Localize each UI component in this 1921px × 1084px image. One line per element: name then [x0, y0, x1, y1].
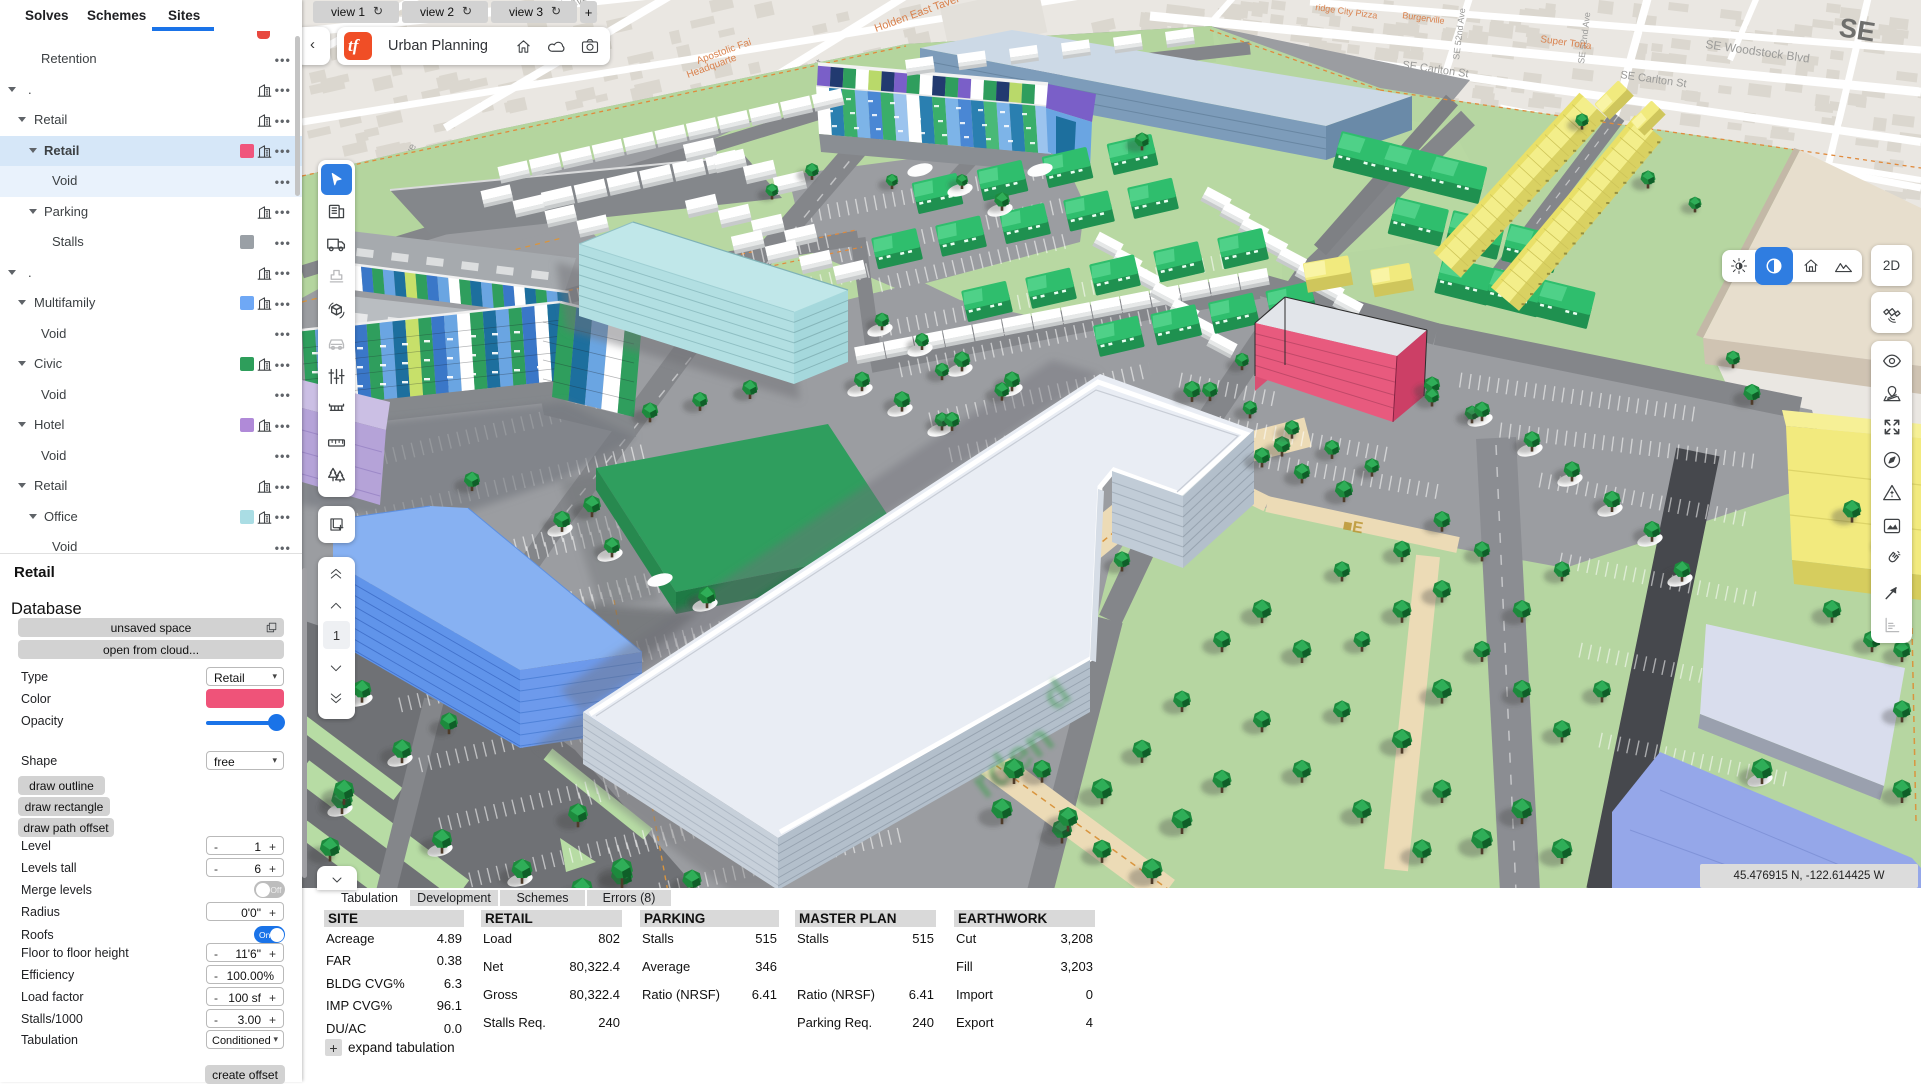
- svg-text:SE: SE: [1837, 12, 1877, 47]
- svg-text:■E: ■E: [1341, 517, 1364, 537]
